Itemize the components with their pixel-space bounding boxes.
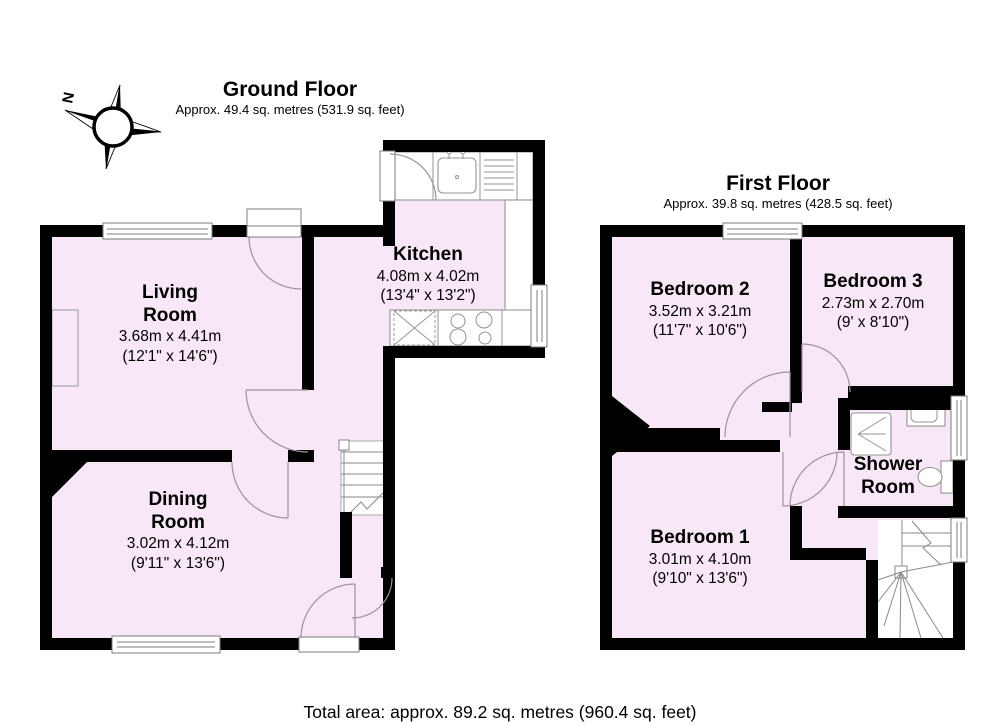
first-floor-plan bbox=[600, 223, 967, 650]
shower-tray-icon bbox=[851, 413, 891, 455]
chimney-breast bbox=[52, 310, 78, 386]
bedroom2-window bbox=[723, 223, 802, 239]
staircase-first bbox=[878, 520, 953, 638]
dining-room-window bbox=[112, 636, 220, 653]
compass-circle bbox=[94, 108, 132, 146]
living-room-window bbox=[103, 223, 212, 239]
ground-floor-area bbox=[40, 225, 395, 650]
floorplan-drawing: N bbox=[0, 0, 1000, 727]
ground-floor-plan bbox=[40, 140, 547, 653]
stairs-window bbox=[951, 518, 967, 562]
shower-room-window bbox=[951, 396, 967, 460]
kitchen-window bbox=[531, 285, 547, 347]
compass-rose: N bbox=[59, 85, 161, 169]
compass-north-label: N bbox=[59, 91, 78, 105]
floorplan-canvas: N Ground Floor Approx. 49.4 sq. metres (… bbox=[0, 0, 1000, 727]
